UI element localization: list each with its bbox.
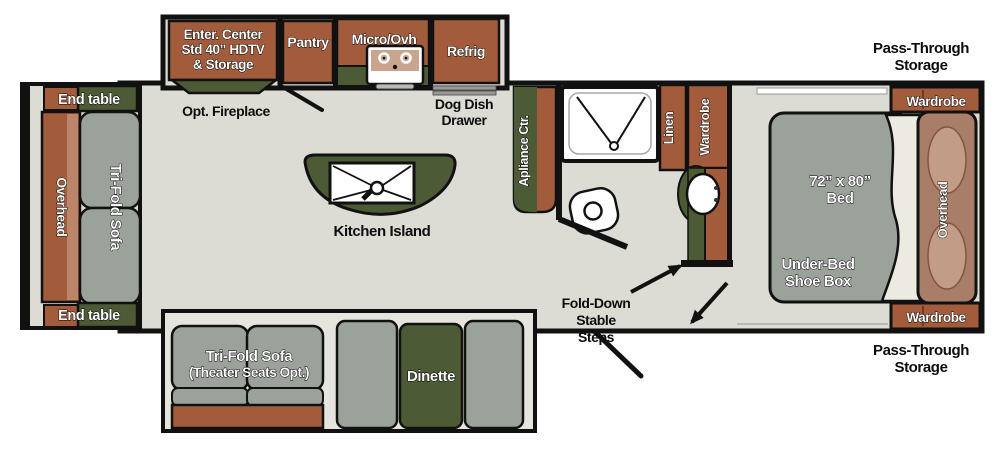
fold-down-label-1: Fold-Down	[562, 295, 631, 311]
bottom-slide-furniture: Tri-Fold Sofa (Theater Seats Opt.) Dinet…	[172, 321, 523, 428]
theater-sofa-front	[172, 405, 323, 428]
vanity-bottom-wall	[681, 260, 733, 267]
left-slide-furniture: End table Overhead Tri-Fold Sofa End tab…	[42, 86, 140, 327]
shower-drain	[610, 142, 618, 150]
underbed-label-1: Under-Bed	[781, 256, 854, 273]
dinette-bench-right	[465, 321, 523, 428]
wardrobe-top-right-label: Wardrobe	[906, 94, 966, 109]
pass-through-top-label-2: Storage	[894, 57, 947, 74]
dinette-bench-left	[337, 321, 397, 428]
end-table-top-label: End table	[58, 92, 120, 108]
overhead-left-label: Overhead	[54, 177, 69, 236]
underbed-label-2: Shoe Box	[785, 273, 852, 290]
floorplan-page: End table Overhead Tri-Fold Sofa End tab…	[0, 0, 1008, 454]
faucet-handle	[714, 198, 718, 202]
pass-through-top-label-1: Pass-Through	[873, 40, 969, 57]
micro-ovh-label: Micro/Ovh	[352, 31, 417, 47]
theater-sofa-label-1: Tri-Fold Sofa	[206, 348, 294, 365]
pantry-label: Pantry	[287, 34, 329, 50]
dog-dish-label-2: Drawer	[441, 112, 487, 128]
vanity-sink	[687, 174, 719, 214]
fold-down-label-3: Steps	[578, 329, 615, 345]
bath-right-wall	[727, 85, 732, 265]
linen-label: Linen	[661, 111, 676, 144]
bedroom: Overhead 72” x 80” Bed Under-Bed Shoe Bo…	[737, 87, 980, 329]
floorplan-svg: End table Overhead Tri-Fold Sofa End tab…	[0, 0, 1008, 454]
dinette-label: Dinette	[407, 368, 455, 385]
appliance-center: Apliance Ctr.	[514, 87, 556, 212]
wardrobe-bottom-right-label: Wardrobe	[906, 310, 966, 325]
bed-overhead-label: Overhead	[935, 181, 950, 238]
opt-fireplace-label: Opt. Fireplace	[182, 103, 270, 119]
ent-center-label-3: & Storage	[193, 57, 254, 72]
theater-sofa-seat-right	[247, 388, 323, 406]
range-icon	[367, 46, 423, 89]
ent-center-label-2: Std 40” HDTV	[182, 42, 265, 57]
trifold-sofa-left-label: Tri-Fold Sofa	[107, 164, 124, 252]
theater-sofa-label-2: (Theater Seats Opt.)	[189, 365, 309, 380]
end-table-bottom-label: End table	[58, 308, 120, 324]
pantry-cabinet	[283, 21, 333, 83]
refrig-label: Refrig	[447, 43, 485, 59]
island-drain	[371, 182, 383, 194]
faucet-handle	[714, 186, 718, 190]
appliance-ctr-label: Apliance Ctr.	[517, 115, 531, 186]
dog-dish-label-1: Dog Dish	[435, 96, 493, 112]
fold-down-label-2: Stable	[576, 312, 616, 328]
kitchen-island-label: Kitchen Island	[334, 223, 431, 240]
tv-stand-face	[172, 80, 276, 93]
pass-through-bottom-label-1: Pass-Through	[873, 342, 969, 359]
bed-size-label: 72” x 80”	[809, 173, 870, 190]
bath-wardrobe-label: Wardrobe	[697, 98, 712, 155]
pass-through-bottom-label-2: Storage	[894, 359, 947, 376]
theater-sofa-seat-left	[172, 388, 248, 406]
bed-label: Bed	[826, 190, 853, 207]
bedroom-window	[757, 88, 887, 94]
ent-center-label-1: Enter. Center	[184, 27, 264, 42]
